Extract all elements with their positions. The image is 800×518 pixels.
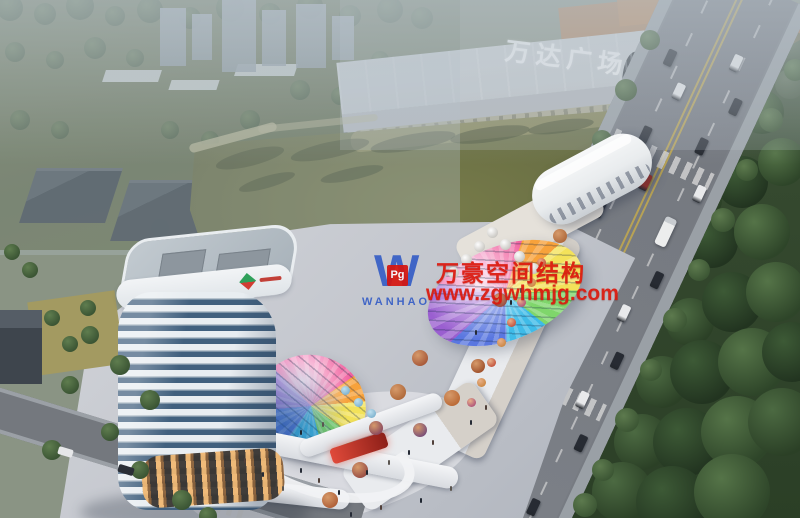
- aerial-rendering: 万达广场: [0, 0, 800, 518]
- watermark-logo-badge: Pg: [387, 265, 408, 286]
- watermark: W Pg WANHAO 万豪空间结构 www.zgwhmjg.com: [360, 248, 640, 320]
- haze-overlay-top: [0, 0, 800, 165]
- dark-building: [0, 310, 42, 384]
- tower-brand-logo-icon: [239, 273, 256, 290]
- car: [573, 434, 588, 453]
- tower-brand-text: [259, 276, 281, 282]
- watermark-url: www.zgwhmjg.com: [426, 282, 619, 306]
- tower-base-storefront: [140, 447, 285, 509]
- car: [649, 270, 664, 289]
- watermark-logo-name: WANHAO: [362, 296, 430, 308]
- car: [609, 351, 624, 370]
